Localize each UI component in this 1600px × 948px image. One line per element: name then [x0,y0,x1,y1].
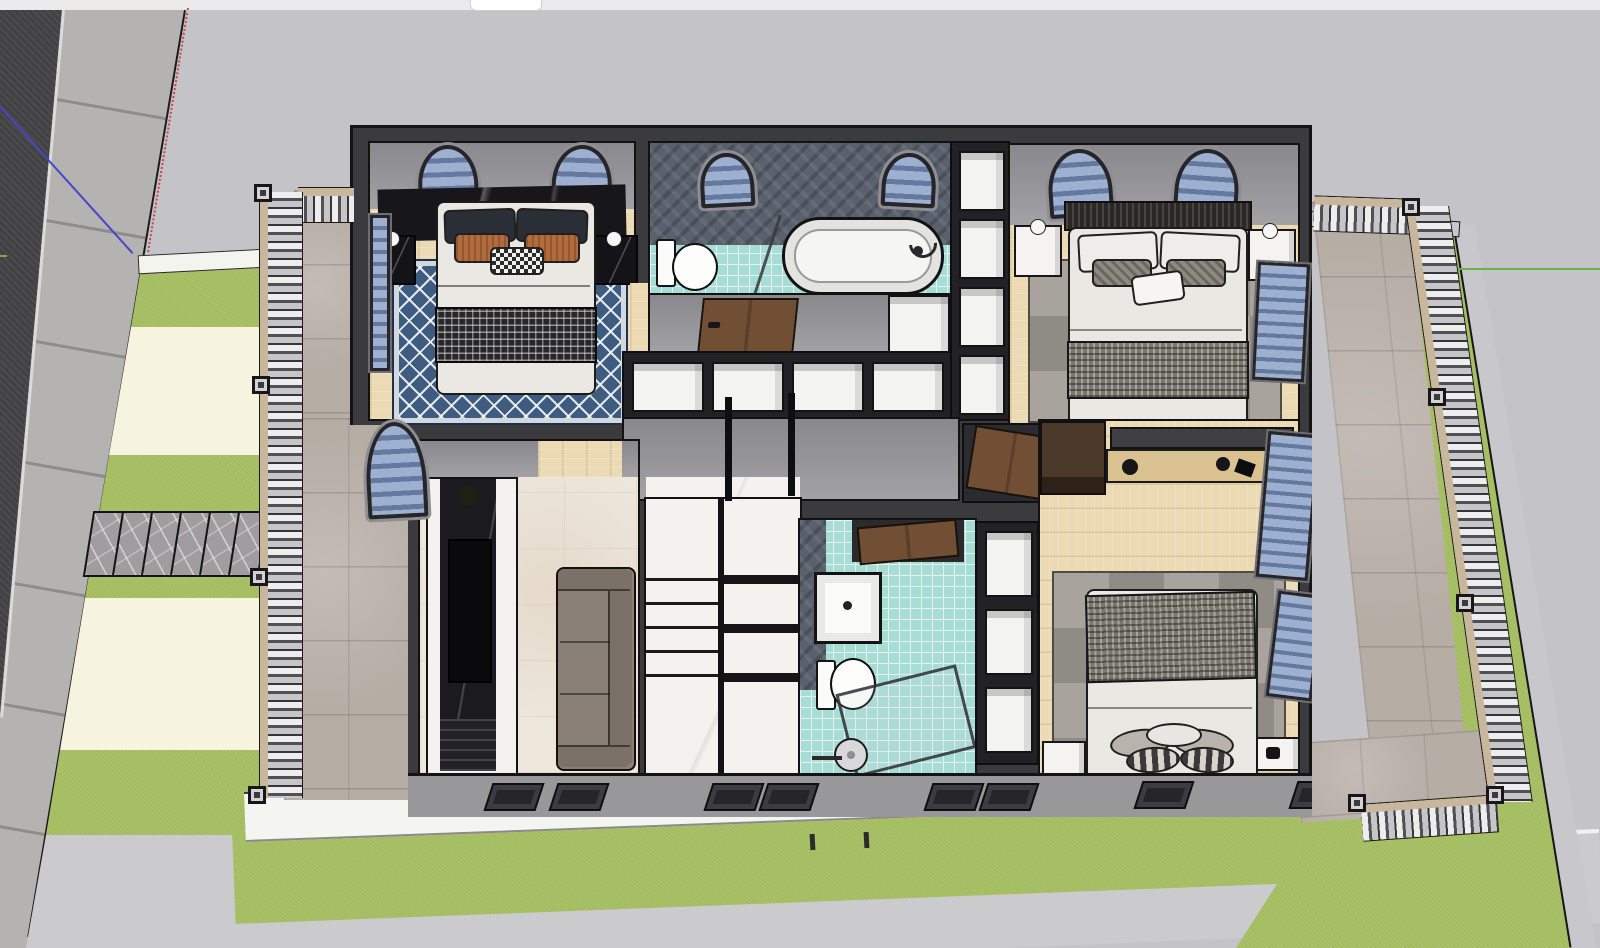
living-doorway-wood [538,441,622,477]
bedroom-1-side-window-icon [370,215,390,371]
sofa-cushion-line-1 [560,641,610,643]
corridor-small-closet [888,295,950,353]
toolbar-strip [0,0,1600,11]
bathroom-2-vanity [814,572,882,644]
front-window-head-4 [758,783,819,811]
sofa-cushion-line-2 [560,693,610,695]
railing-post-left-4 [248,786,266,804]
viewport-3d-canvas[interactable] [0,0,1600,948]
bedroom-3-nightstand-left [1042,741,1086,775]
shelf-2-box-1 [985,531,1033,597]
bed-1-fold-line [438,285,590,287]
wardrobe-compartment-1 [632,362,704,412]
sofa [556,567,636,771]
tv-screen-icon [448,539,492,683]
sofa-backrest [608,571,632,763]
bedroom-2 [1010,145,1298,429]
front-window-head-7 [1133,781,1194,809]
wardrobe-compartment-4 [872,362,944,412]
shelf-1-box-1 [959,151,1005,211]
bathroom-1-toilet-bowl-icon [672,243,718,291]
bedroom-2-lamp-right-icon [1262,223,1278,239]
desk-decor-3-icon [1234,458,1256,477]
vanity-faucet-icon [843,601,852,610]
stair-newel-post-1 [725,397,732,501]
door-handle-icon [708,322,721,328]
shelf-2-box-3 [985,687,1033,753]
plant-icon [458,485,478,505]
railing-post-right-3 [1456,594,1474,612]
bedroom-3 [1040,421,1298,773]
bedroom-1-bed [436,201,596,395]
shelf-1-box-2 [959,219,1005,279]
bedroom-2-bed [1068,227,1248,427]
corridor-door [697,298,799,354]
railing-post-left-2 [252,376,270,394]
shelf-1-box-4 [959,355,1005,415]
bedroom-3-bed [1086,589,1258,777]
corridor-1 [650,295,950,353]
staircase [646,499,800,773]
bed-2-plaid-throw [1067,341,1249,399]
shelf-column-1 [952,143,1008,419]
stair-right-flight [724,535,800,709]
stair-hall-floor [646,477,800,499]
railing-post-right-2 [1428,388,1446,406]
stair-newel-post-2 [788,393,795,496]
front-lawn-post-1 [810,834,816,850]
axis-green-right [1455,268,1600,270]
living-area [420,441,638,773]
tv-console-shelf [440,719,496,771]
front-lawn-post-2 [864,832,870,848]
bathroom-2 [800,520,975,773]
wardrobe-compartment-2 [712,362,784,412]
shelf-column-2 [977,523,1037,763]
bathroom-1-bathtub [782,217,944,295]
bathroom-1 [650,143,950,295]
railing-post-front-2 [1486,786,1504,804]
shelf-2-box-2 [985,609,1033,675]
front-window-head-1 [483,783,544,811]
railing-post-right-1 [1402,198,1420,216]
stair-left-flight [646,557,718,695]
tv-wall [426,477,518,777]
pillow-check-center [490,247,544,275]
house-second-floor [350,125,1312,817]
sofa-armrest-top [558,569,630,591]
east-window-1-icon [1252,262,1310,383]
bedroom-3-nightstand-right [1256,737,1300,771]
bedroom-2-throw-pillow [1130,270,1186,307]
bedroom-2-lamp-left-icon [1030,219,1046,235]
front-window-head-3 [703,783,764,811]
toolbar-active-tab[interactable] [470,0,542,11]
bed-3-plaid-blanket [1085,591,1257,683]
railing-post-front-1 [1348,794,1366,812]
bed-1-throw-blanket [435,307,597,363]
wardrobe-compartment-3 [792,362,864,412]
axis-green-left-tick [0,255,7,257]
front-window-head-2 [548,783,609,811]
railing-left [260,192,302,798]
bed-2-fold-line [1070,329,1242,331]
bed-3-fold-line [1088,707,1252,709]
desk-decor-2-icon [1216,457,1230,471]
shower-arm-icon [812,756,842,760]
railing-top-left-joint [298,188,354,222]
front-window-head-6 [978,783,1039,811]
desk-decor-1-icon [1122,459,1138,475]
sofa-armrest-bottom [558,745,630,767]
bedroom-3-closet [1040,421,1106,495]
bedroom-1-lamp-right-icon [606,231,622,247]
front-window-head-5 [923,783,984,811]
railing-post-left-3 [250,568,268,586]
bed-3-pillow-5 [1146,723,1202,747]
railing-post-left-1 [254,184,272,202]
bedroom-1 [370,143,634,419]
shower-head-icon [834,738,868,772]
shelf-1-box-3 [959,287,1005,347]
railing-top-right-joint [1313,196,1410,233]
nightstand-decor-icon [1266,747,1280,759]
front-exterior-wall [408,773,1312,817]
